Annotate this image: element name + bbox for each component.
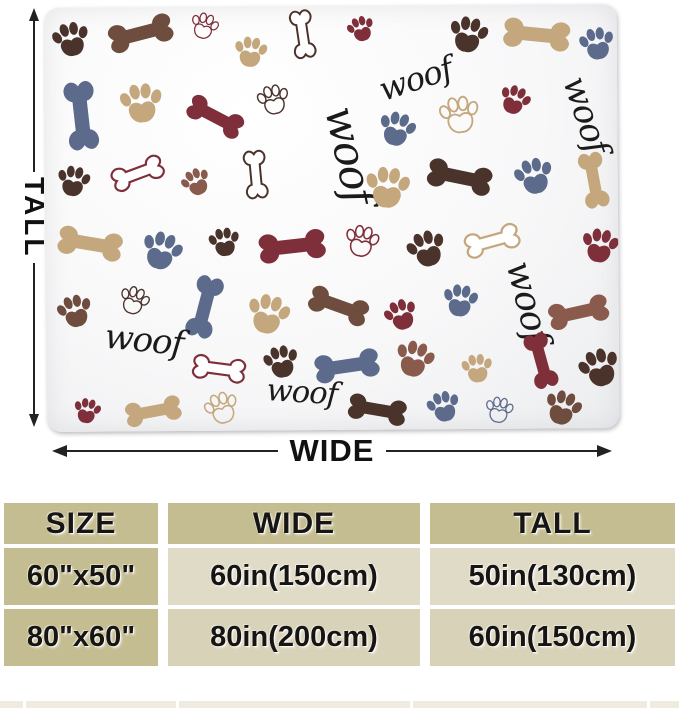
bone-icon <box>426 157 494 198</box>
paw-outline-icon <box>187 10 222 42</box>
size-chart-cell-row1-wide: 60in(150cm) <box>168 548 420 605</box>
partial-cell <box>0 701 23 708</box>
paw-icon <box>70 396 103 426</box>
paw-icon <box>135 226 188 275</box>
paw-icon <box>539 386 587 430</box>
paw-icon <box>440 282 481 319</box>
wide-dimension-arrow: WIDE <box>52 438 612 464</box>
bone-outline-icon <box>463 222 521 259</box>
paw-icon <box>510 154 559 199</box>
paw-outline-icon <box>254 82 292 117</box>
size-chart-cell-row1-size: 60"x50" <box>4 548 158 605</box>
bone-outline-icon <box>289 9 316 58</box>
bone-icon <box>56 224 124 263</box>
paw-icon <box>459 352 495 384</box>
partial-table-row <box>0 701 679 708</box>
paw-icon <box>176 163 215 200</box>
arrow-line <box>386 450 597 452</box>
paw-icon <box>578 226 620 266</box>
paw-icon <box>54 163 94 199</box>
bone-outline-icon <box>243 150 268 199</box>
paw-icon <box>206 225 243 258</box>
paw-icon <box>576 24 618 62</box>
bone-icon <box>522 331 560 391</box>
woof-script: woof <box>554 71 619 164</box>
paw-icon <box>445 13 493 56</box>
bone-icon <box>62 80 100 151</box>
bone-outline-icon <box>110 154 166 193</box>
partial-cell <box>179 701 410 708</box>
paw-icon <box>231 34 270 69</box>
size-chart-header-wide: WIDE <box>168 503 420 544</box>
bone-icon <box>547 293 611 332</box>
arrow-left-icon <box>52 445 67 457</box>
paw-icon <box>401 225 451 272</box>
blanket-pattern-svg: woofwoofwoofwoofwoofwoof <box>45 4 620 432</box>
size-chart-table: SIZE WIDE TALL 60"x50" 60in(150cm) 50in(… <box>4 503 675 666</box>
paw-outline-icon <box>115 283 153 318</box>
paw-outline-icon <box>200 388 243 428</box>
arrow-up-icon <box>29 8 39 21</box>
paw-outline-icon <box>342 223 382 260</box>
bone-icon <box>106 12 175 55</box>
paw-icon <box>374 107 421 150</box>
size-chart-header-tall: TALL <box>430 503 675 544</box>
bone-icon <box>577 151 611 210</box>
paw-icon <box>343 12 378 45</box>
bone-icon <box>184 274 226 341</box>
arrow-line <box>33 21 35 172</box>
product-infographic: woofwoofwoofwoofwoofwoof TALL WIDE SIZE … <box>0 0 679 708</box>
bone-outline-icon <box>192 354 246 383</box>
paw-icon <box>390 336 439 381</box>
size-chart-cell-row2-tall: 60in(150cm) <box>430 609 675 666</box>
paw-icon <box>423 387 465 425</box>
arrow-line <box>67 450 278 452</box>
paw-icon <box>117 81 167 125</box>
size-chart-header-size: SIZE <box>4 503 158 544</box>
bone-icon <box>258 228 327 264</box>
paw-icon <box>53 291 97 332</box>
bone-icon <box>124 394 183 428</box>
bone-icon <box>502 17 571 53</box>
paw-icon <box>242 290 295 339</box>
paw-outline-icon <box>436 94 482 135</box>
size-chart-cell-row2-wide: 80in(200cm) <box>168 609 420 666</box>
tall-label: TALL <box>18 172 50 263</box>
blanket-photo: woofwoofwoofwoofwoofwoof <box>45 4 620 432</box>
partial-cell <box>650 701 679 708</box>
bone-icon <box>306 284 371 329</box>
size-chart-cell-row1-tall: 50in(130cm) <box>430 548 675 605</box>
arrow-right-icon <box>597 445 612 457</box>
bone-icon <box>347 392 408 427</box>
partial-cell <box>26 701 176 708</box>
woof-script: woof <box>265 373 343 413</box>
paw-icon <box>48 18 94 59</box>
arrow-line <box>33 263 35 414</box>
tall-dimension-arrow: TALL <box>16 8 52 427</box>
bone-icon <box>184 92 247 141</box>
wide-label: WIDE <box>278 433 387 469</box>
partial-cell <box>413 701 647 708</box>
paw-icon <box>379 294 422 334</box>
paw-icon <box>494 81 535 120</box>
size-chart-cell-row2-size: 80"x60" <box>4 609 158 666</box>
arrow-down-icon <box>29 414 39 427</box>
woof-script: woof <box>103 317 192 365</box>
paw-icon <box>573 343 619 392</box>
paw-outline-icon <box>483 395 516 424</box>
